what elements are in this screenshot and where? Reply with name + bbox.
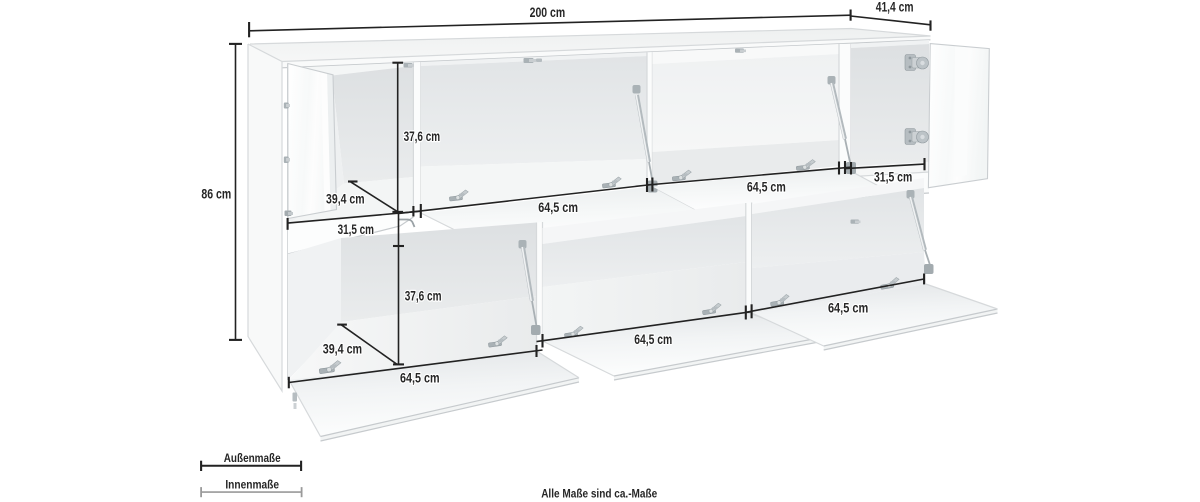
svg-text:37,6 cm: 37,6 cm [404,129,441,145]
svg-text:64,5 cm: 64,5 cm [538,200,578,216]
svg-text:31,5 cm: 31,5 cm [338,222,374,238]
svg-text:86 cm: 86 cm [201,186,231,202]
svg-text:37,6 cm: 37,6 cm [405,288,442,304]
svg-text:39,4 cm: 39,4 cm [323,342,362,358]
svg-text:64,5 cm: 64,5 cm [828,300,868,316]
svg-text:Außenmaße: Außenmaße [224,453,281,465]
svg-text:Alle Maße sind ca.-Maße: Alle Maße sind ca.-Maße [541,487,657,501]
svg-text:31,5 cm: 31,5 cm [874,169,912,185]
svg-text:64,5 cm: 64,5 cm [400,371,440,387]
svg-text:Innenmaße: Innenmaße [225,479,279,491]
svg-text:64,5 cm: 64,5 cm [634,332,672,348]
svg-text:200 cm: 200 cm [530,5,566,21]
svg-text:39,4 cm: 39,4 cm [326,192,365,208]
svg-text:64,5 cm: 64,5 cm [747,180,786,196]
svg-text:41,4 cm: 41,4 cm [876,0,914,16]
